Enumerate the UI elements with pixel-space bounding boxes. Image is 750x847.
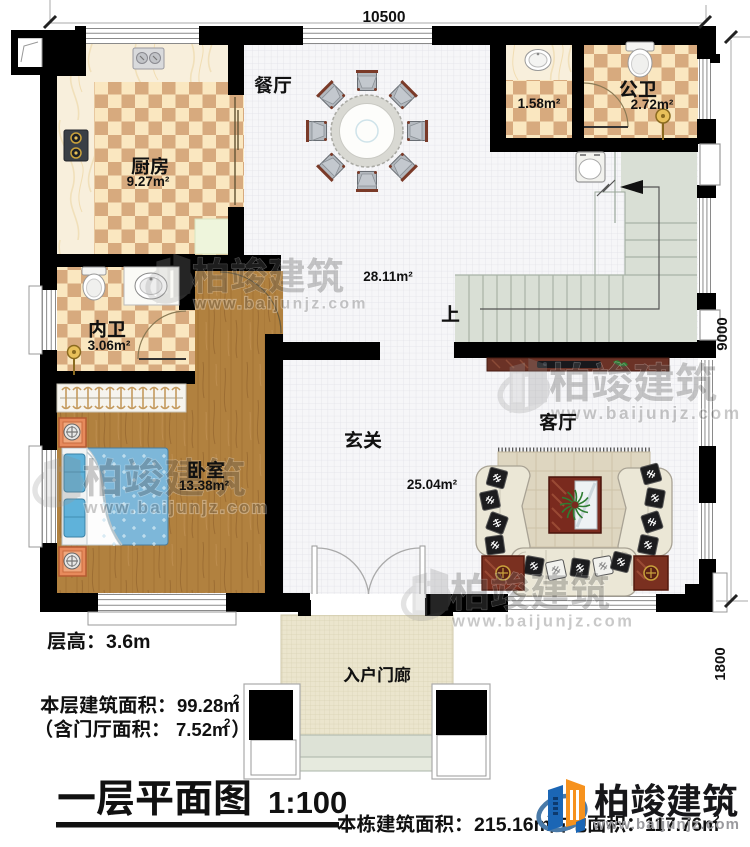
svg-text:1800: 1800 xyxy=(712,647,729,680)
svg-text:www.baijunjz.com: www.baijunjz.com xyxy=(451,612,634,630)
svg-text:9000: 9000 xyxy=(714,317,731,350)
svg-text:28.11m²: 28.11m² xyxy=(363,269,413,284)
svg-text:www.baijunjz.com: www.baijunjz.com xyxy=(550,403,742,423)
svg-text:3.6m: 3.6m xyxy=(106,631,150,653)
svg-text:www.baijunjz.com: www.baijunjz.com xyxy=(193,296,368,313)
svg-text:1.58m²: 1.58m² xyxy=(518,96,561,111)
svg-text:3.06m²: 3.06m² xyxy=(88,338,131,353)
svg-text:7.52m: 7.52m xyxy=(176,719,228,740)
svg-text:25.04m²: 25.04m² xyxy=(407,477,458,492)
svg-text:www.baijunjz.com: www.baijunjz.com xyxy=(592,816,740,833)
svg-text:1:100: 1:100 xyxy=(268,785,347,820)
svg-text:9.27m²: 9.27m² xyxy=(127,174,170,189)
svg-text:10500: 10500 xyxy=(362,9,405,26)
svg-text:13.38m²: 13.38m² xyxy=(179,478,230,493)
svg-text:2.72m²: 2.72m² xyxy=(631,97,674,112)
svg-text:99.28m: 99.28m xyxy=(177,695,240,716)
svg-text:2: 2 xyxy=(233,694,239,706)
svg-text:2: 2 xyxy=(224,718,230,730)
svg-text:www.baijunjz.com: www.baijunjz.com xyxy=(83,498,269,517)
